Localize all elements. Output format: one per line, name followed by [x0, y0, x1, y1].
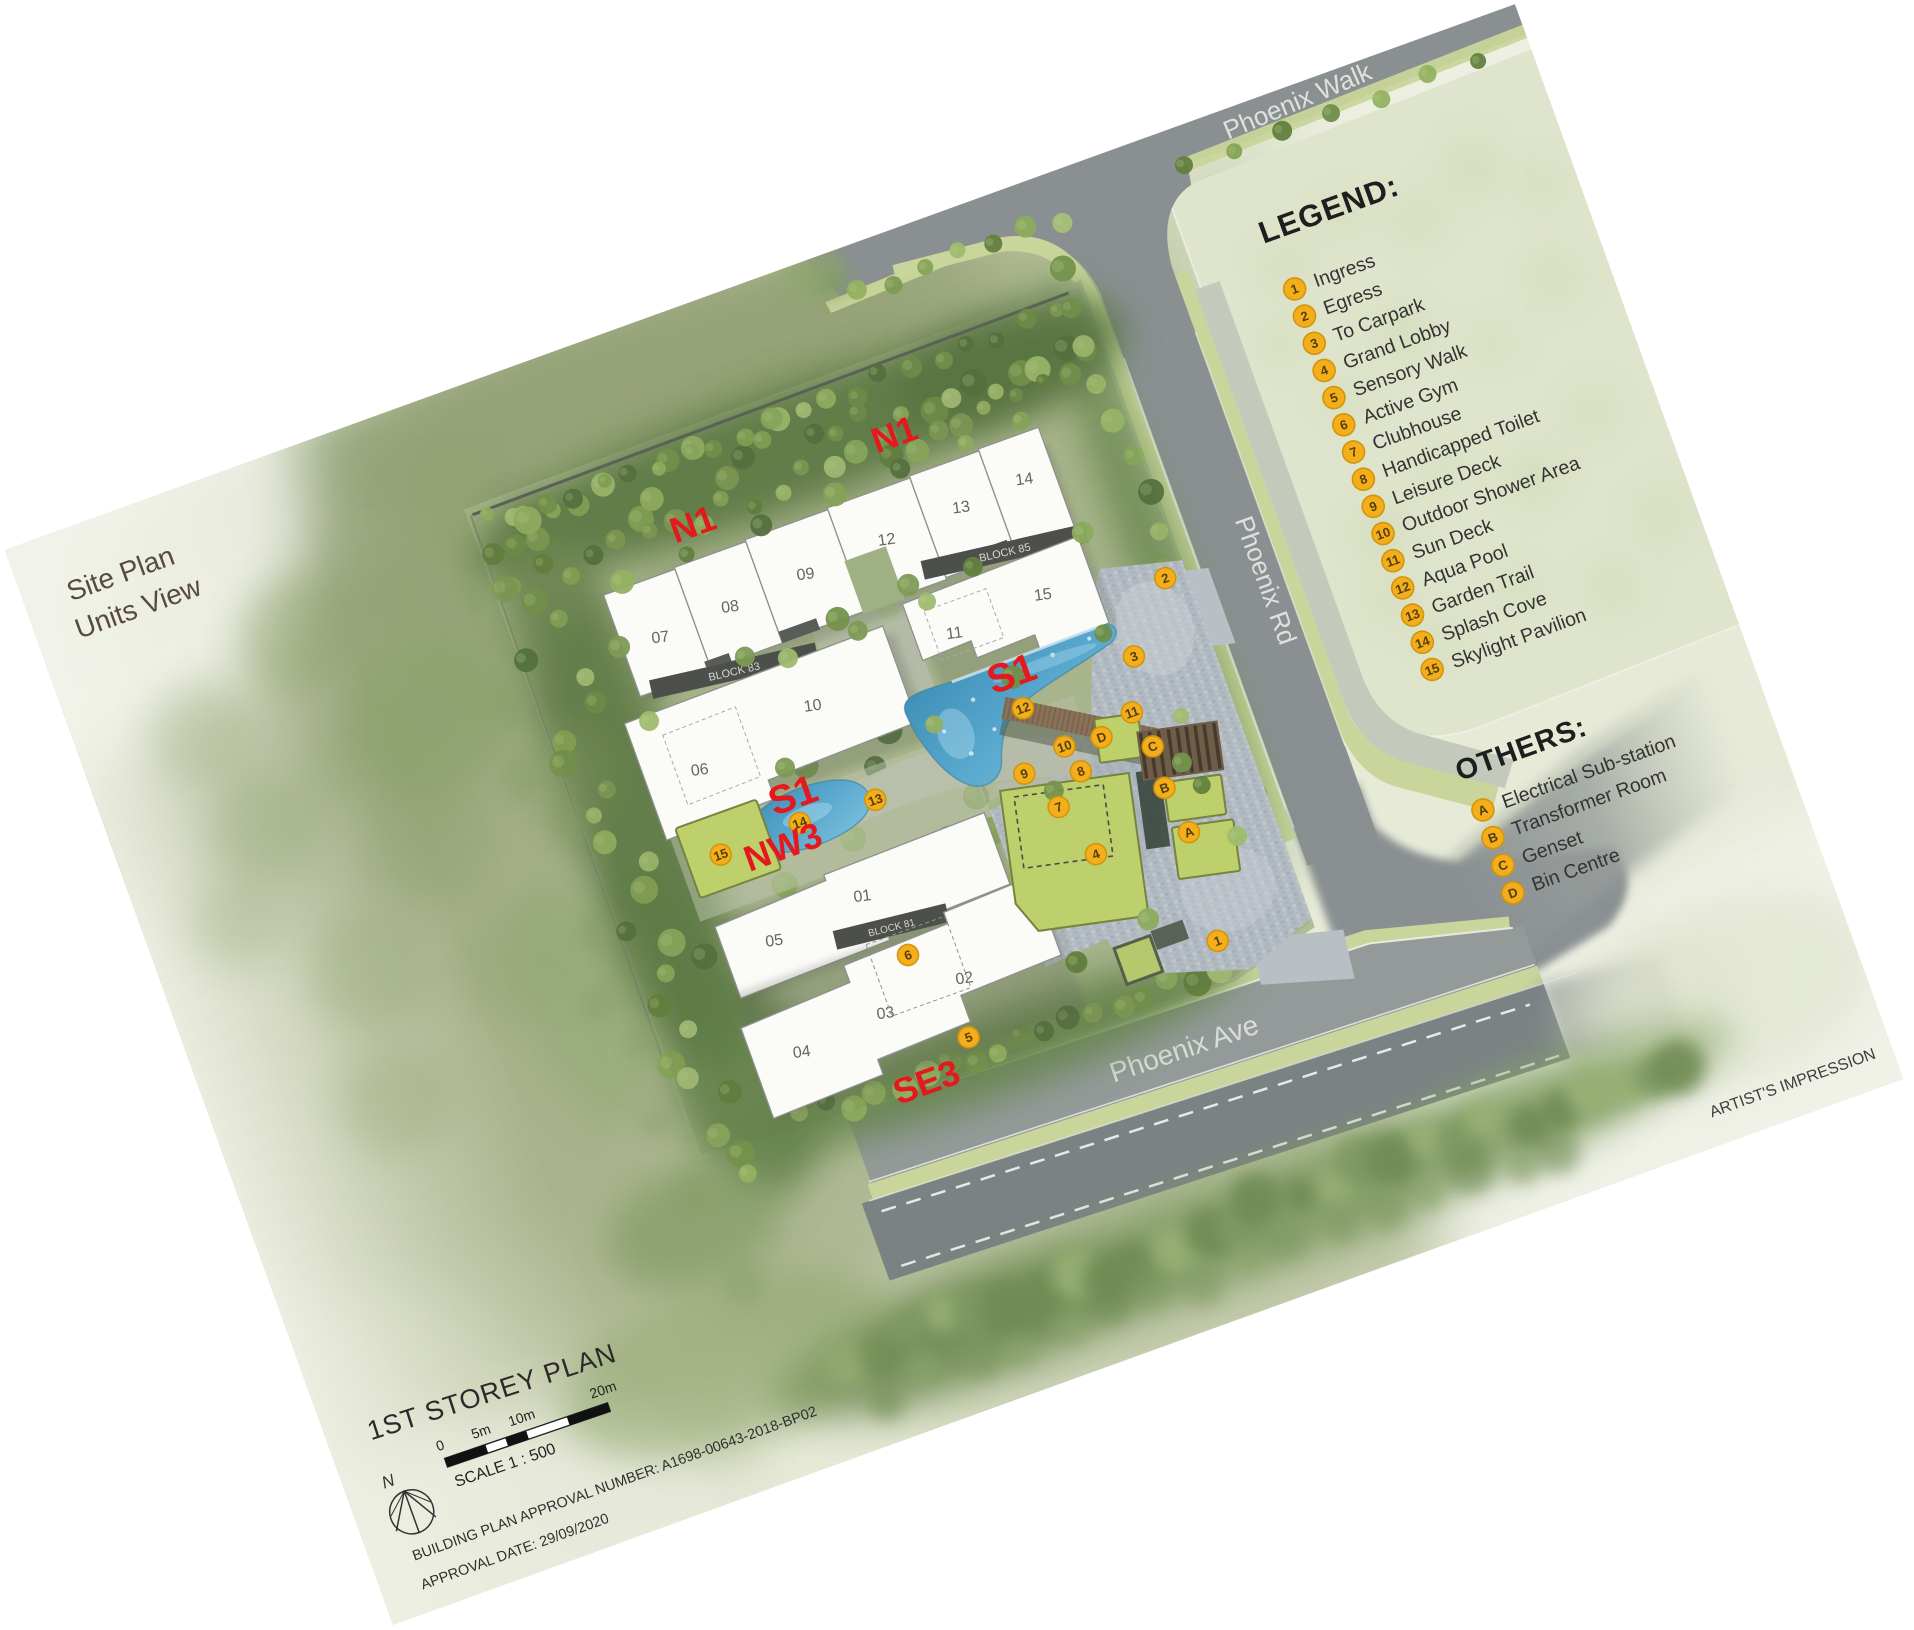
svg-text:08: 08	[720, 598, 740, 617]
svg-text:05: 05	[764, 932, 784, 951]
svg-text:14: 14	[1014, 470, 1034, 489]
svg-text:01: 01	[852, 887, 872, 906]
svg-text:15: 15	[1033, 586, 1053, 605]
svg-text:06: 06	[690, 761, 710, 780]
svg-text:09: 09	[796, 565, 816, 584]
svg-text:07: 07	[650, 628, 670, 647]
svg-text:04: 04	[792, 1043, 812, 1062]
svg-text:12: 12	[877, 530, 897, 549]
svg-text:10: 10	[803, 697, 823, 716]
svg-text:03: 03	[876, 1004, 896, 1023]
svg-text:11: 11	[945, 624, 964, 643]
svg-text:13: 13	[951, 498, 971, 517]
svg-text:02: 02	[954, 969, 974, 988]
